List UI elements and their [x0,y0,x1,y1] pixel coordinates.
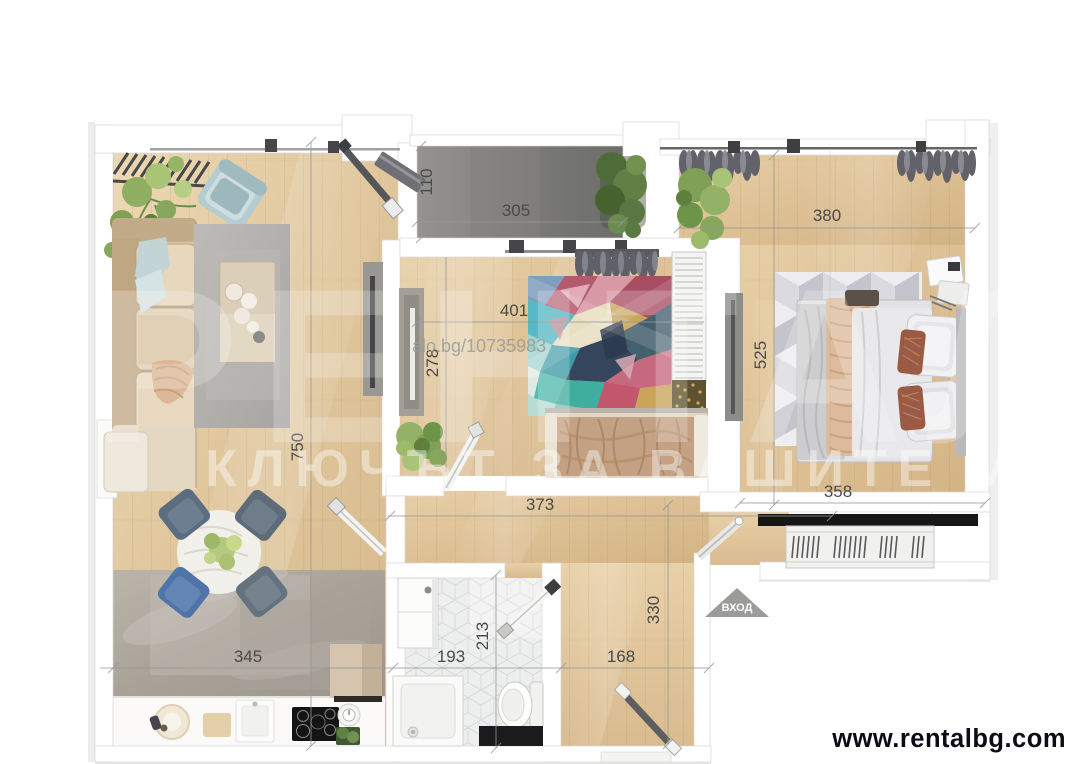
svg-text:305: 305 [502,201,530,220]
svg-text:ВХОД: ВХОД [722,602,753,614]
svg-text:www.rentalbg.com: www.rentalbg.com [831,725,1066,753]
svg-text:345: 345 [234,647,262,666]
svg-text:alo.bg/10735983: alo.bg/10735983 [412,336,546,356]
svg-text:213: 213 [473,622,492,650]
svg-text:КЛЮЧЪТ ЗА ВАШИТЕ МЕЧТИ: КЛЮЧЪТ ЗА ВАШИТЕ МЕЧТИ [205,440,1080,498]
svg-text:380: 380 [813,206,841,225]
svg-text:330: 330 [644,596,663,624]
svg-text:193: 193 [437,647,465,666]
svg-text:168: 168 [607,647,635,666]
svg-text:110: 110 [417,168,436,195]
